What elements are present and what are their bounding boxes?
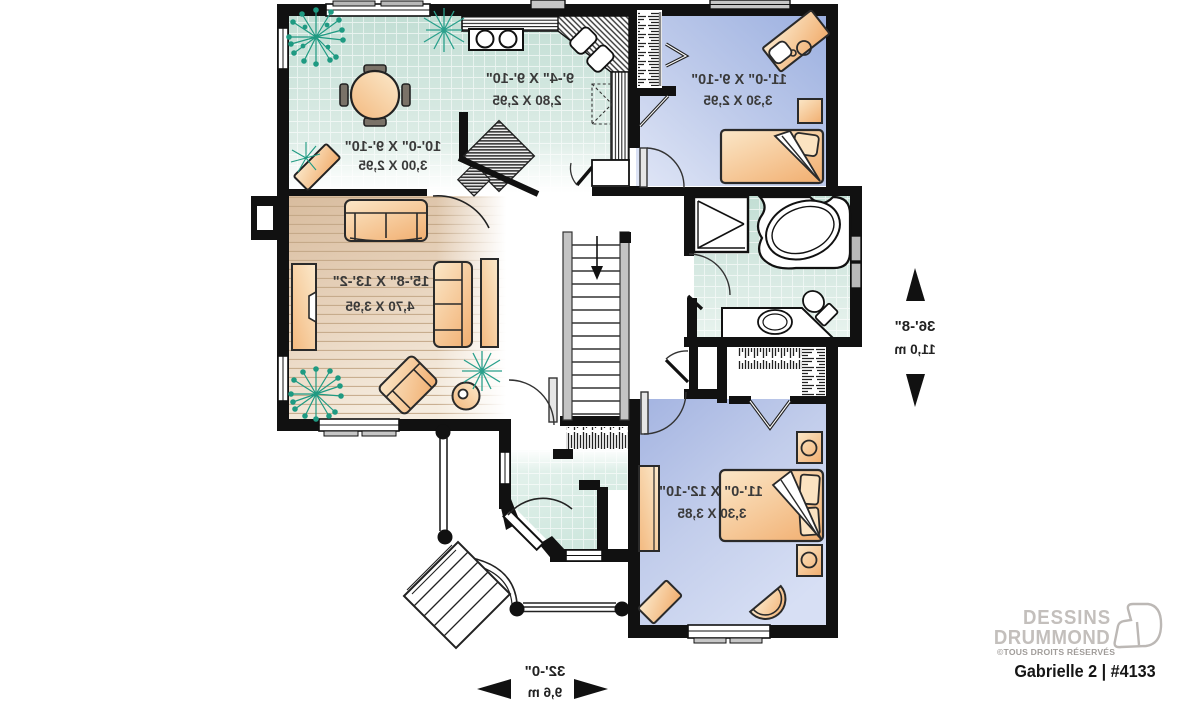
svg-text:3,30 X 2,95: 3,30 X 2,95 (703, 93, 773, 108)
svg-text:9'-4" X 9'-10": 9'-4" X 9'-10" (486, 71, 574, 87)
svg-text:4,70 X 3,95: 4,70 X 3,95 (345, 299, 415, 314)
svg-text:3,30 X 3,85: 3,30 X 3,85 (677, 506, 747, 521)
svg-text:11'-0" X 12'-10": 11'-0" X 12'-10" (659, 484, 763, 500)
svg-text:11,0 m: 11,0 m (894, 342, 935, 357)
svg-text:DESSINS: DESSINS (1023, 607, 1111, 629)
svg-text:©TOUS DROITS RÉSERVÉS: ©TOUS DROITS RÉSERVÉS (997, 647, 1115, 657)
svg-text:DRUMMOND: DRUMMOND (994, 627, 1110, 649)
svg-text:10'-0" X 9'-10": 10'-0" X 9'-10" (345, 139, 441, 155)
svg-text:2,80 X 2,95: 2,80 X 2,95 (492, 93, 562, 108)
svg-text:9,6 m: 9,6 m (528, 685, 563, 700)
svg-text:Gabrielle 2 | #4133: Gabrielle 2 | #4133 (1014, 661, 1155, 681)
svg-text:11'-0" X 9'-10": 11'-0" X 9'-10" (691, 72, 787, 88)
svg-text:15'-8" X 13'-2": 15'-8" X 13'-2" (333, 274, 429, 290)
svg-text:32'-0": 32'-0" (525, 663, 566, 680)
svg-text:3,00 X 2,95: 3,00 X 2,95 (358, 158, 428, 173)
svg-text:36'-8": 36'-8" (895, 318, 936, 335)
